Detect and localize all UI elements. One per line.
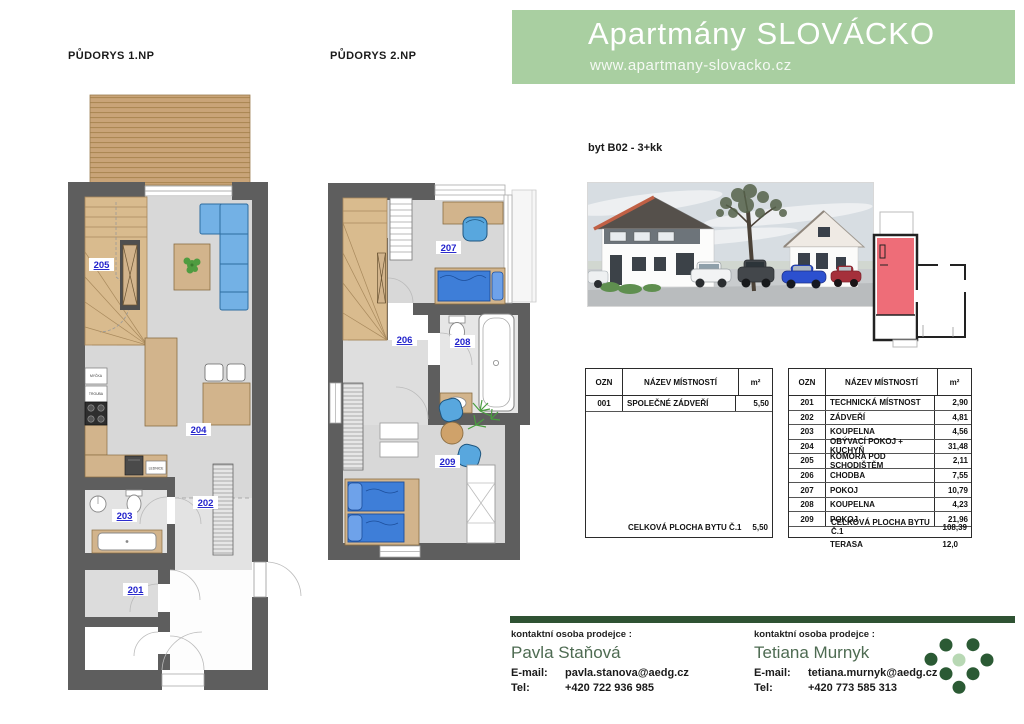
logo-dot bbox=[967, 638, 980, 651]
logo-dot bbox=[940, 667, 953, 680]
table-header: OZN NÁZEV MÍSTNOSTÍ m² bbox=[789, 369, 971, 396]
room-label-207: 207 bbox=[441, 243, 457, 254]
brand-header: Apartmány SLOVÁCKO www.apartmany-slovack… bbox=[512, 10, 1015, 84]
logo-dot bbox=[981, 654, 994, 667]
logo-dot bbox=[925, 653, 938, 666]
flue bbox=[120, 240, 140, 310]
table-footer: CELKOVÁ PLOCHA BYTU Č.1 108,39 bbox=[789, 517, 971, 537]
table-header: OZN NÁZEV MÍSTNOSTÍ m² bbox=[586, 369, 772, 396]
wardrobe bbox=[213, 464, 233, 555]
table-row: 201 TECHNICKÁ MÍSTNOST 2,90 bbox=[789, 396, 971, 411]
col-name: NÁZEV MÍSTNOSTÍ bbox=[623, 369, 739, 395]
table-row: 206 CHODBA 7,55 bbox=[789, 469, 971, 484]
plan1-title: PŮDORYS 1.NP bbox=[68, 50, 154, 62]
table-row: 208 KOUPELNA 4,23 bbox=[789, 498, 971, 513]
pillow bbox=[492, 272, 503, 300]
contact-seller-1: kontaktní osoba prodejce : Pavla Staňová… bbox=[511, 629, 746, 696]
unit-label: byt B02 - 3+kk bbox=[588, 142, 662, 154]
col-name: NÁZEV MÍSTNOSTÍ bbox=[826, 369, 938, 395]
table-row: 202 ZÁDVEŘÍ 4,81 bbox=[789, 411, 971, 426]
col-ozn: OZN bbox=[789, 369, 826, 395]
email-value[interactable]: pavla.stanova@aedg.cz bbox=[565, 666, 746, 681]
logo-dot-light bbox=[953, 654, 966, 667]
brand-url-link[interactable]: www.apartmany-slovacko.cz bbox=[590, 57, 792, 74]
logo-dot bbox=[967, 667, 980, 680]
chair bbox=[463, 217, 487, 241]
balcony bbox=[512, 190, 536, 302]
tel-label: Tel: bbox=[754, 681, 808, 696]
appliance-label: MYČKA bbox=[90, 373, 103, 378]
round-table bbox=[441, 422, 463, 444]
divider-bar bbox=[510, 616, 1015, 623]
appliance-label: TROUBA bbox=[89, 392, 104, 396]
brand-title: Apartmány SLOVÁCKO bbox=[588, 16, 935, 52]
wardrobe bbox=[343, 383, 363, 470]
contact-heading: kontaktní osoba prodejce : bbox=[511, 629, 746, 640]
room-label-204: 204 bbox=[191, 425, 208, 436]
floor-plan-2np: 207 206 208 209 bbox=[328, 183, 540, 573]
room-label-201: 201 bbox=[128, 585, 145, 596]
email-label: E-mail: bbox=[511, 666, 565, 681]
table-footer: CELKOVÁ PLOCHA BYTU Č.1 5,50 bbox=[586, 517, 772, 537]
tel-label: Tel: bbox=[511, 681, 565, 696]
room-label-208: 208 bbox=[455, 337, 471, 348]
table-row: 207 POKOJ 10,79 bbox=[789, 483, 971, 498]
logo-dot bbox=[940, 639, 953, 652]
page: PŮDORYS 1.NP PŮDORYS 2.NP Apartmány SLOV… bbox=[0, 0, 1024, 724]
floor-plan-1np: MYČKA TROUBA LEDNICE bbox=[62, 92, 302, 692]
col-m2: m² bbox=[938, 369, 971, 395]
room-label-209: 209 bbox=[440, 457, 456, 468]
room-table-apartment-1: OZN NÁZEV MÍSTNOSTÍ m² 001 SPOLEČNÉ ZÁDV… bbox=[585, 368, 773, 538]
room-label-205: 205 bbox=[94, 260, 111, 271]
sink-icon bbox=[125, 456, 143, 475]
stove-icon bbox=[85, 402, 107, 425]
logo-grapes-icon bbox=[920, 636, 1000, 698]
room-label-203: 203 bbox=[117, 511, 133, 522]
col-ozn: OZN bbox=[586, 369, 623, 395]
appliance-label: LEDNICE bbox=[149, 467, 164, 471]
pillow bbox=[348, 483, 362, 510]
table-row: 001 SPOLEČNÉ ZÁDVEŘÍ 5,50 bbox=[586, 396, 772, 412]
room-label-202: 202 bbox=[198, 498, 214, 509]
plan2-title: PŮDORYS 2.NP bbox=[330, 50, 416, 62]
room-table-apartment-2: OZN NÁZEV MÍSTNOSTÍ m² 201 TECHNICKÁ MÍS… bbox=[788, 368, 972, 538]
highlighted-unit bbox=[877, 238, 914, 315]
terrace-deck bbox=[90, 95, 250, 185]
col-m2: m² bbox=[739, 369, 772, 395]
pillow bbox=[348, 515, 362, 541]
email-label: E-mail: bbox=[754, 666, 808, 681]
logo-dot bbox=[953, 681, 966, 694]
exterior-render bbox=[588, 183, 873, 306]
table-row: 205 KOMORA POD SCHODIŠTĚM 2,11 bbox=[789, 454, 971, 469]
room-label-206: 206 bbox=[397, 335, 413, 346]
coffee-table bbox=[174, 244, 210, 290]
adjacent-unit bbox=[917, 265, 965, 337]
contact-name: Pavla Staňová bbox=[511, 643, 746, 663]
terasa-row: TERASA 12,0 bbox=[788, 540, 970, 549]
kitchen-island bbox=[145, 338, 177, 426]
bathtub-icon bbox=[479, 314, 514, 411]
tel-value: +420 722 936 985 bbox=[565, 681, 746, 696]
key-plan bbox=[863, 195, 973, 350]
